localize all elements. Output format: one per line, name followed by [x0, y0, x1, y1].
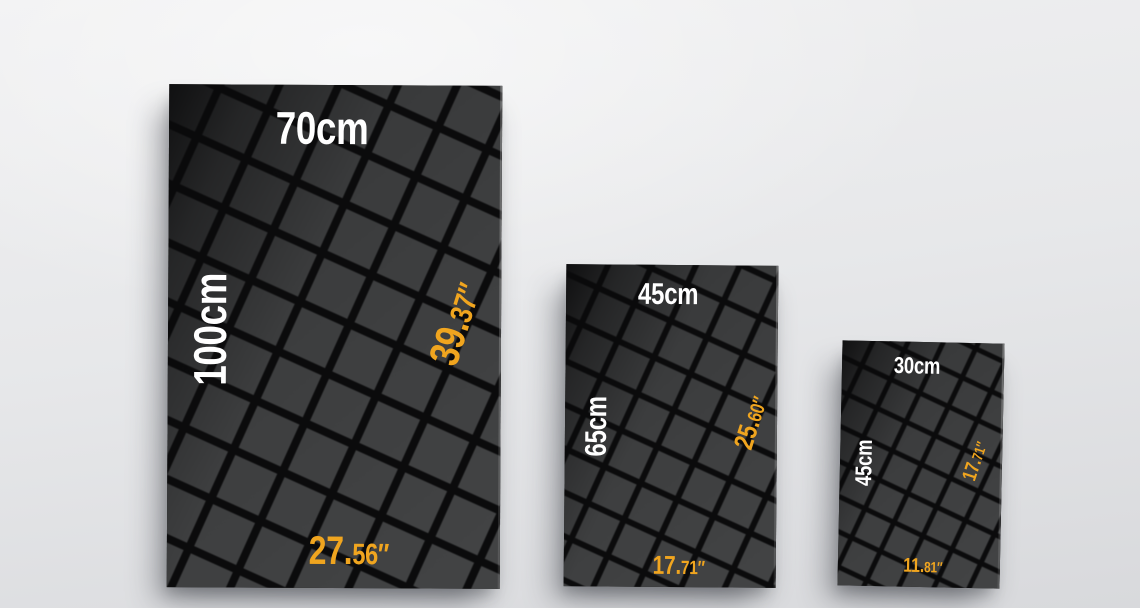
- inches-fraction: 56″: [352, 538, 389, 571]
- inches-fraction: 71″: [681, 558, 705, 579]
- width-cm-label: 70cm: [276, 105, 369, 151]
- width-inches-label: 27.56″: [309, 531, 389, 571]
- height-cm-label: 45cm: [852, 439, 876, 486]
- poster-45x30: 30cm 45cm 17.71″ 11.81″: [837, 340, 1004, 588]
- inches-integer: 11.: [903, 555, 924, 577]
- poster-size-comparison: 70cm 100cm 39.37″ 27.56″ 45cm 65cm 25.60…: [0, 0, 1140, 608]
- poster-65x45: 45cm 65cm 25.60″ 17.71″: [564, 264, 779, 588]
- poster-100x70: 70cm 100cm 39.37″ 27.56″: [167, 84, 503, 589]
- height-cm-label: 65cm: [582, 396, 613, 457]
- height-cm-label: 100cm: [187, 273, 234, 386]
- width-inches-label: 11.81″: [903, 556, 943, 577]
- inches-integer: 17.: [653, 550, 682, 580]
- width-cm-label: 30cm: [894, 354, 941, 378]
- inches-integer: 27.: [309, 529, 353, 573]
- width-inches-label: 17.71″: [653, 552, 705, 579]
- inches-fraction: 81″: [924, 560, 943, 576]
- width-cm-label: 45cm: [638, 280, 699, 311]
